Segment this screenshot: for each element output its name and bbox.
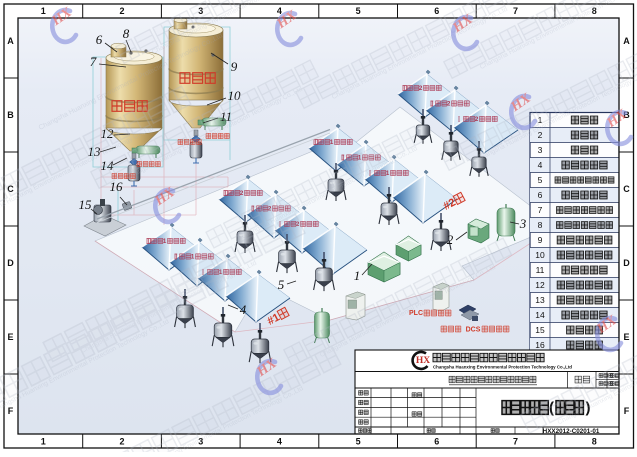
svg-text:14: 14: [535, 310, 545, 320]
svg-text:4: 4: [277, 437, 282, 447]
svg-text:1: 1: [41, 6, 46, 16]
svg-text:13: 13: [535, 295, 545, 305]
svg-text:6: 6: [96, 32, 103, 47]
svg-text:2: 2: [419, 85, 423, 92]
svg-text:F: F: [624, 406, 630, 416]
svg-text:15: 15: [79, 197, 93, 212]
svg-text:B: B: [7, 110, 14, 120]
svg-text:1: 1: [354, 268, 361, 283]
svg-text:1: 1: [330, 139, 334, 146]
svg-text:HX: HX: [416, 356, 430, 366]
svg-text:F: F: [8, 406, 14, 416]
svg-text:DCS: DCS: [466, 327, 481, 334]
svg-text:2: 2: [447, 232, 454, 247]
svg-text:A: A: [623, 36, 630, 46]
svg-text:E: E: [7, 332, 13, 342]
svg-text:12: 12: [535, 280, 545, 290]
svg-text:5: 5: [356, 437, 361, 447]
svg-text:1: 1: [41, 437, 46, 447]
svg-text:Changsha Huanxing Environmenta: Changsha Huanxing Environmental Protecti…: [433, 364, 572, 369]
svg-text:2: 2: [475, 116, 479, 123]
svg-text:8: 8: [538, 220, 543, 230]
svg-text:4: 4: [240, 302, 247, 317]
svg-text:15: 15: [535, 325, 545, 335]
svg-text:2: 2: [240, 190, 244, 197]
svg-text:A: A: [7, 36, 14, 46]
svg-text:6: 6: [434, 437, 439, 447]
svg-text:3: 3: [519, 216, 527, 231]
svg-text:4: 4: [538, 160, 543, 170]
svg-text:9: 9: [538, 235, 543, 245]
svg-text:1: 1: [163, 238, 167, 245]
svg-text:5: 5: [356, 6, 361, 16]
svg-text:7: 7: [538, 205, 543, 215]
svg-text:7: 7: [513, 437, 518, 447]
svg-text:5: 5: [538, 175, 543, 185]
svg-text:5: 5: [278, 277, 285, 292]
svg-text:1: 1: [386, 170, 390, 177]
svg-text:6: 6: [434, 6, 439, 16]
svg-text:3: 3: [538, 145, 543, 155]
svg-text:C: C: [623, 184, 630, 194]
svg-text:8: 8: [592, 437, 597, 447]
svg-text:16: 16: [535, 340, 545, 350]
svg-text:8: 8: [123, 26, 130, 41]
svg-text:9: 9: [231, 59, 238, 74]
svg-text:2: 2: [447, 101, 451, 108]
svg-text:10: 10: [535, 250, 545, 260]
svg-text:2: 2: [119, 437, 124, 447]
svg-text:11: 11: [536, 265, 545, 275]
svg-text:7: 7: [90, 54, 97, 69]
svg-text:D: D: [623, 258, 630, 268]
svg-text:D: D: [7, 258, 14, 268]
svg-text:6: 6: [538, 190, 543, 200]
svg-text:2: 2: [119, 6, 124, 16]
svg-text:1: 1: [191, 254, 195, 261]
svg-text:7: 7: [513, 6, 518, 16]
svg-text:E: E: [623, 332, 629, 342]
